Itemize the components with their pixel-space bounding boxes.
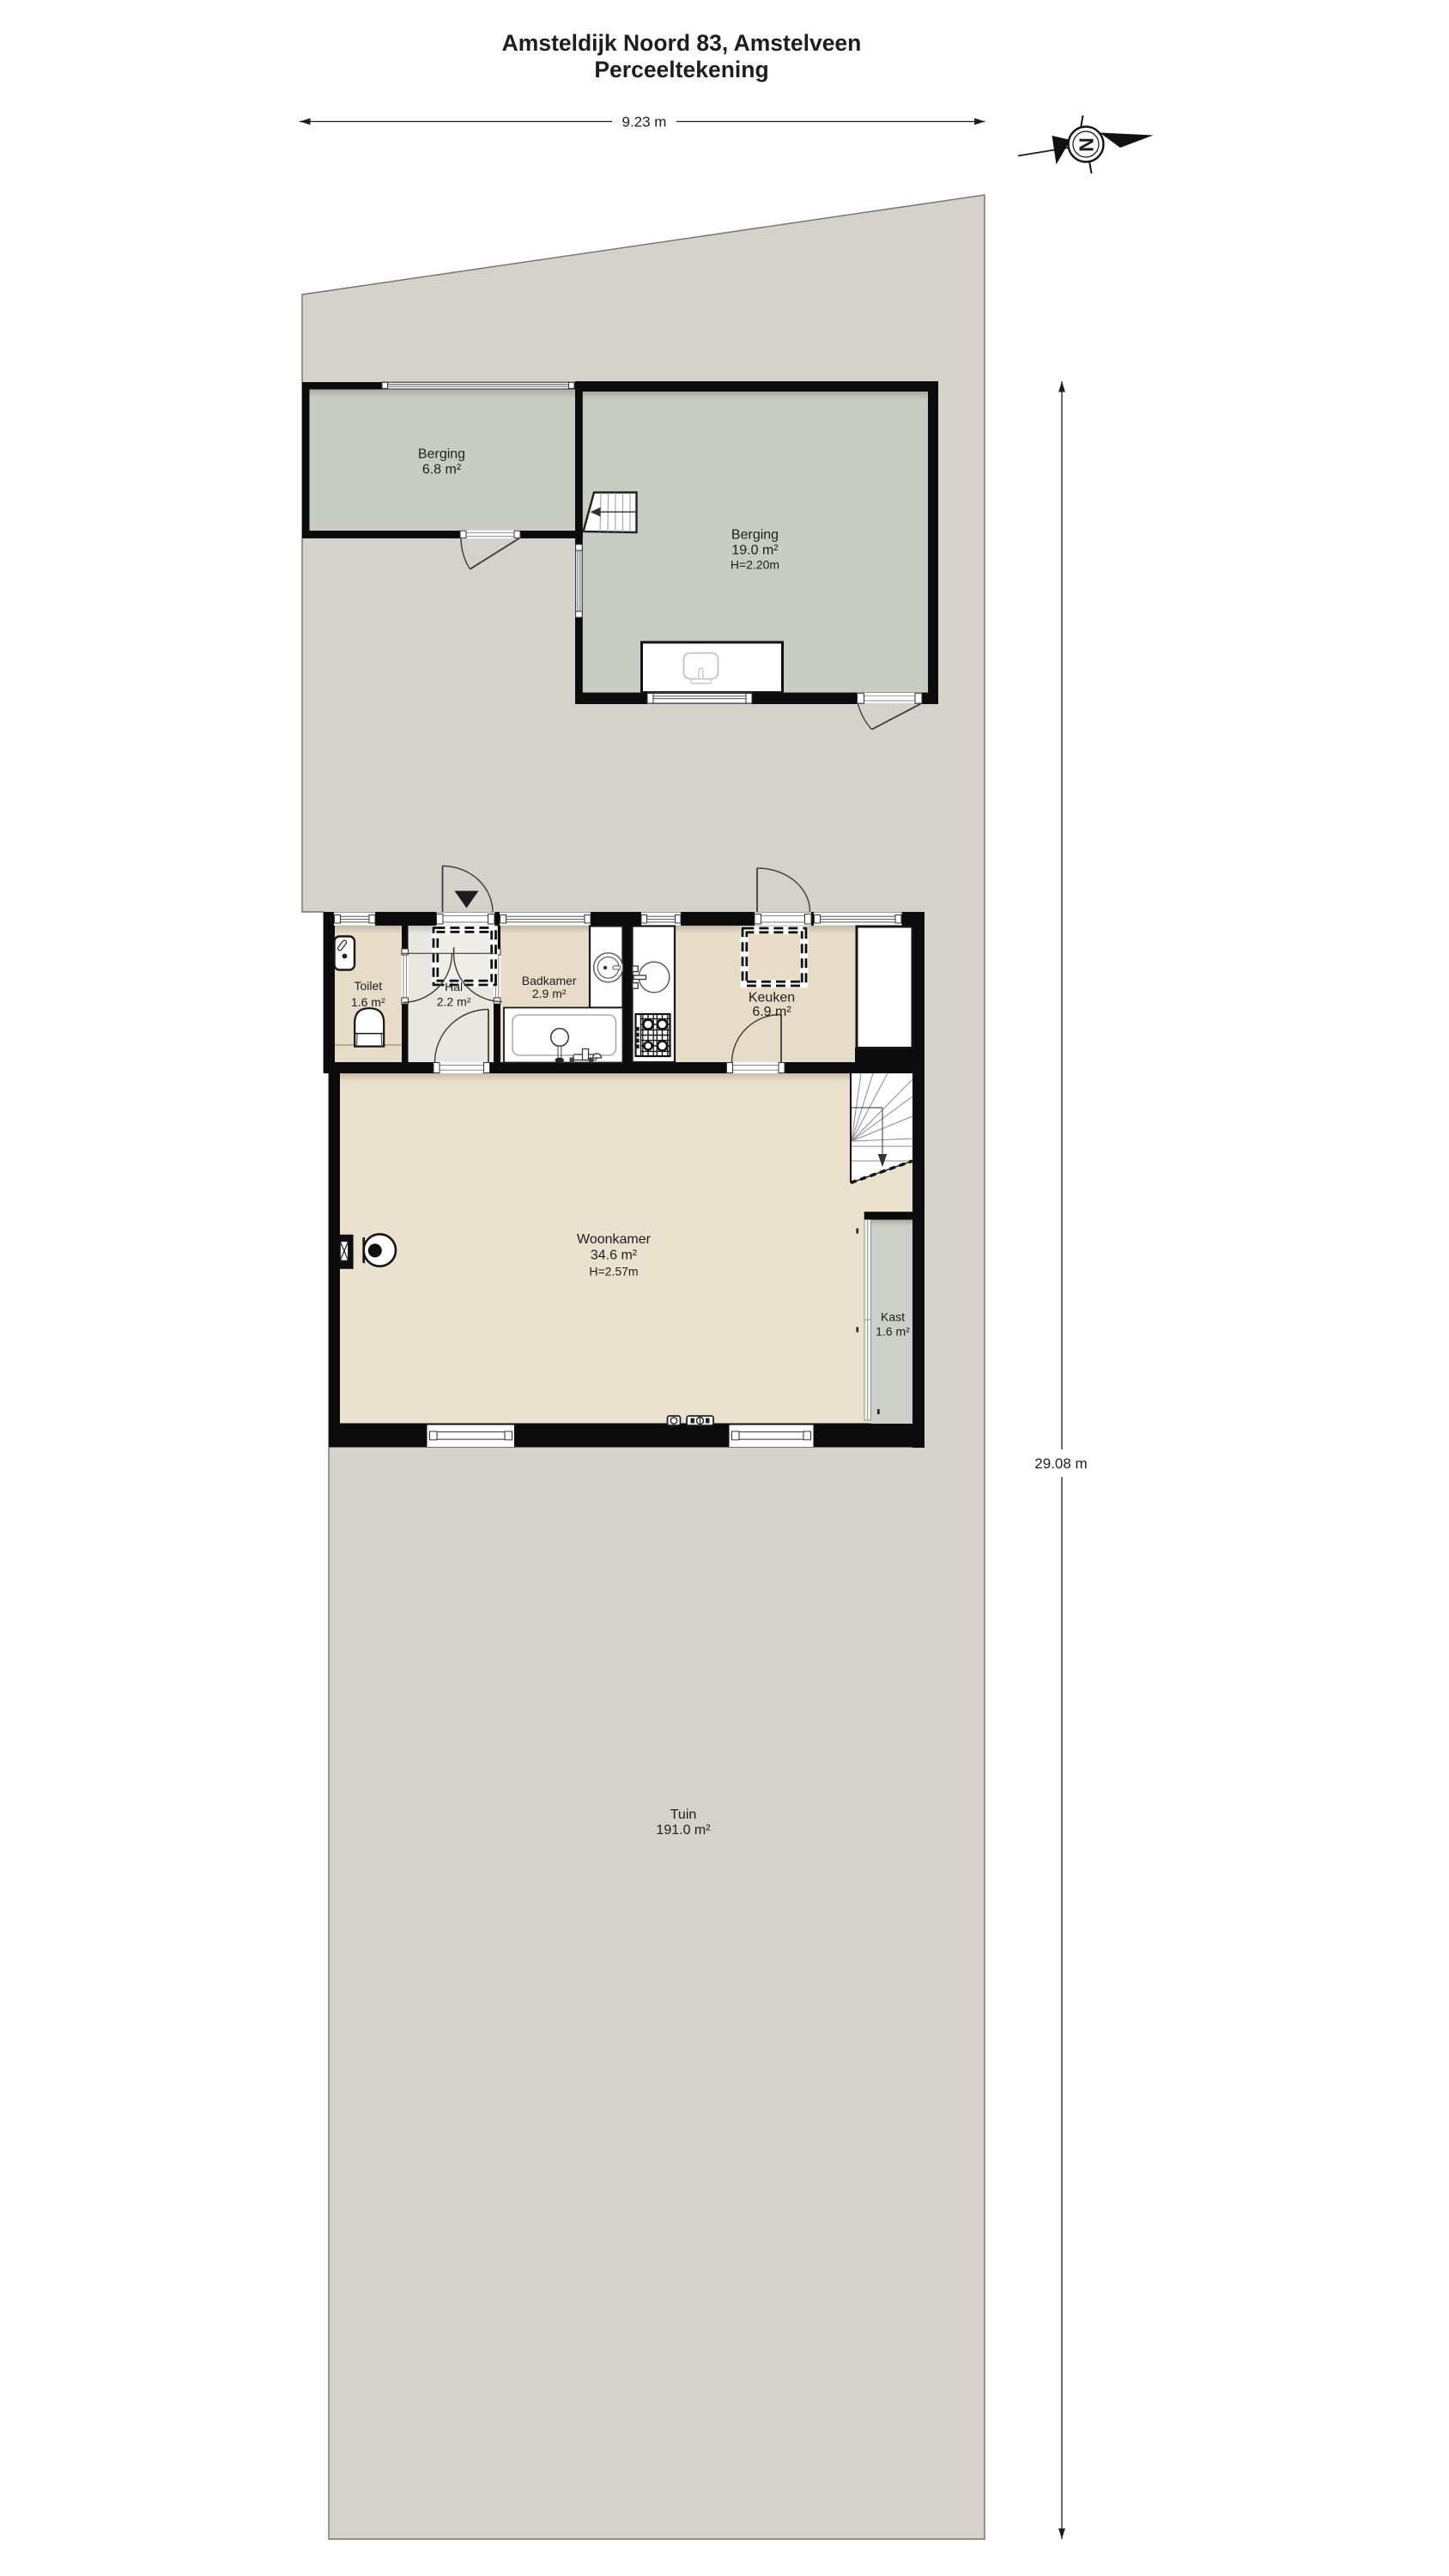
svg-text:Perceeltekening: Perceeltekening	[594, 57, 768, 82]
svg-text:2.2 m²: 2.2 m²	[437, 994, 471, 1008]
svg-text:6.9 m²: 6.9 m²	[752, 1005, 791, 1019]
svg-text:Keuken: Keuken	[749, 990, 795, 1005]
svg-text:2.9 m²: 2.9 m²	[532, 987, 567, 1000]
svg-text:1.6 m²: 1.6 m²	[876, 1325, 910, 1339]
svg-text:191.0 m²: 191.0 m²	[656, 1823, 711, 1838]
svg-text:H=2.57m: H=2.57m	[589, 1265, 638, 1279]
svg-text:N: N	[1076, 137, 1098, 152]
svg-text:6.8 m²: 6.8 m²	[422, 463, 462, 477]
svg-text:Woonkamer: Woonkamer	[577, 1232, 652, 1247]
svg-text:19.0 m²: 19.0 m²	[731, 544, 779, 558]
svg-text:Berging: Berging	[418, 447, 465, 462]
svg-text:Kast: Kast	[881, 1310, 905, 1324]
svg-text:Berging: Berging	[731, 528, 779, 543]
svg-text:29.08 m: 29.08 m	[1034, 1455, 1087, 1472]
svg-text:Amsteldijk Noord 83, Amstelvee: Amsteldijk Noord 83, Amstelveen	[502, 30, 862, 56]
svg-text:H=2.20m: H=2.20m	[731, 558, 779, 572]
svg-text:Badkamer: Badkamer	[522, 974, 577, 987]
svg-text:Tuin: Tuin	[670, 1807, 697, 1822]
svg-text:Hal: Hal	[445, 980, 463, 993]
svg-text:34.6 m²: 34.6 m²	[591, 1249, 638, 1263]
svg-text:1.6 m²: 1.6 m²	[351, 995, 385, 1009]
svg-text:9.23 m: 9.23 m	[622, 114, 667, 131]
svg-text:Toilet: Toilet	[354, 979, 382, 993]
